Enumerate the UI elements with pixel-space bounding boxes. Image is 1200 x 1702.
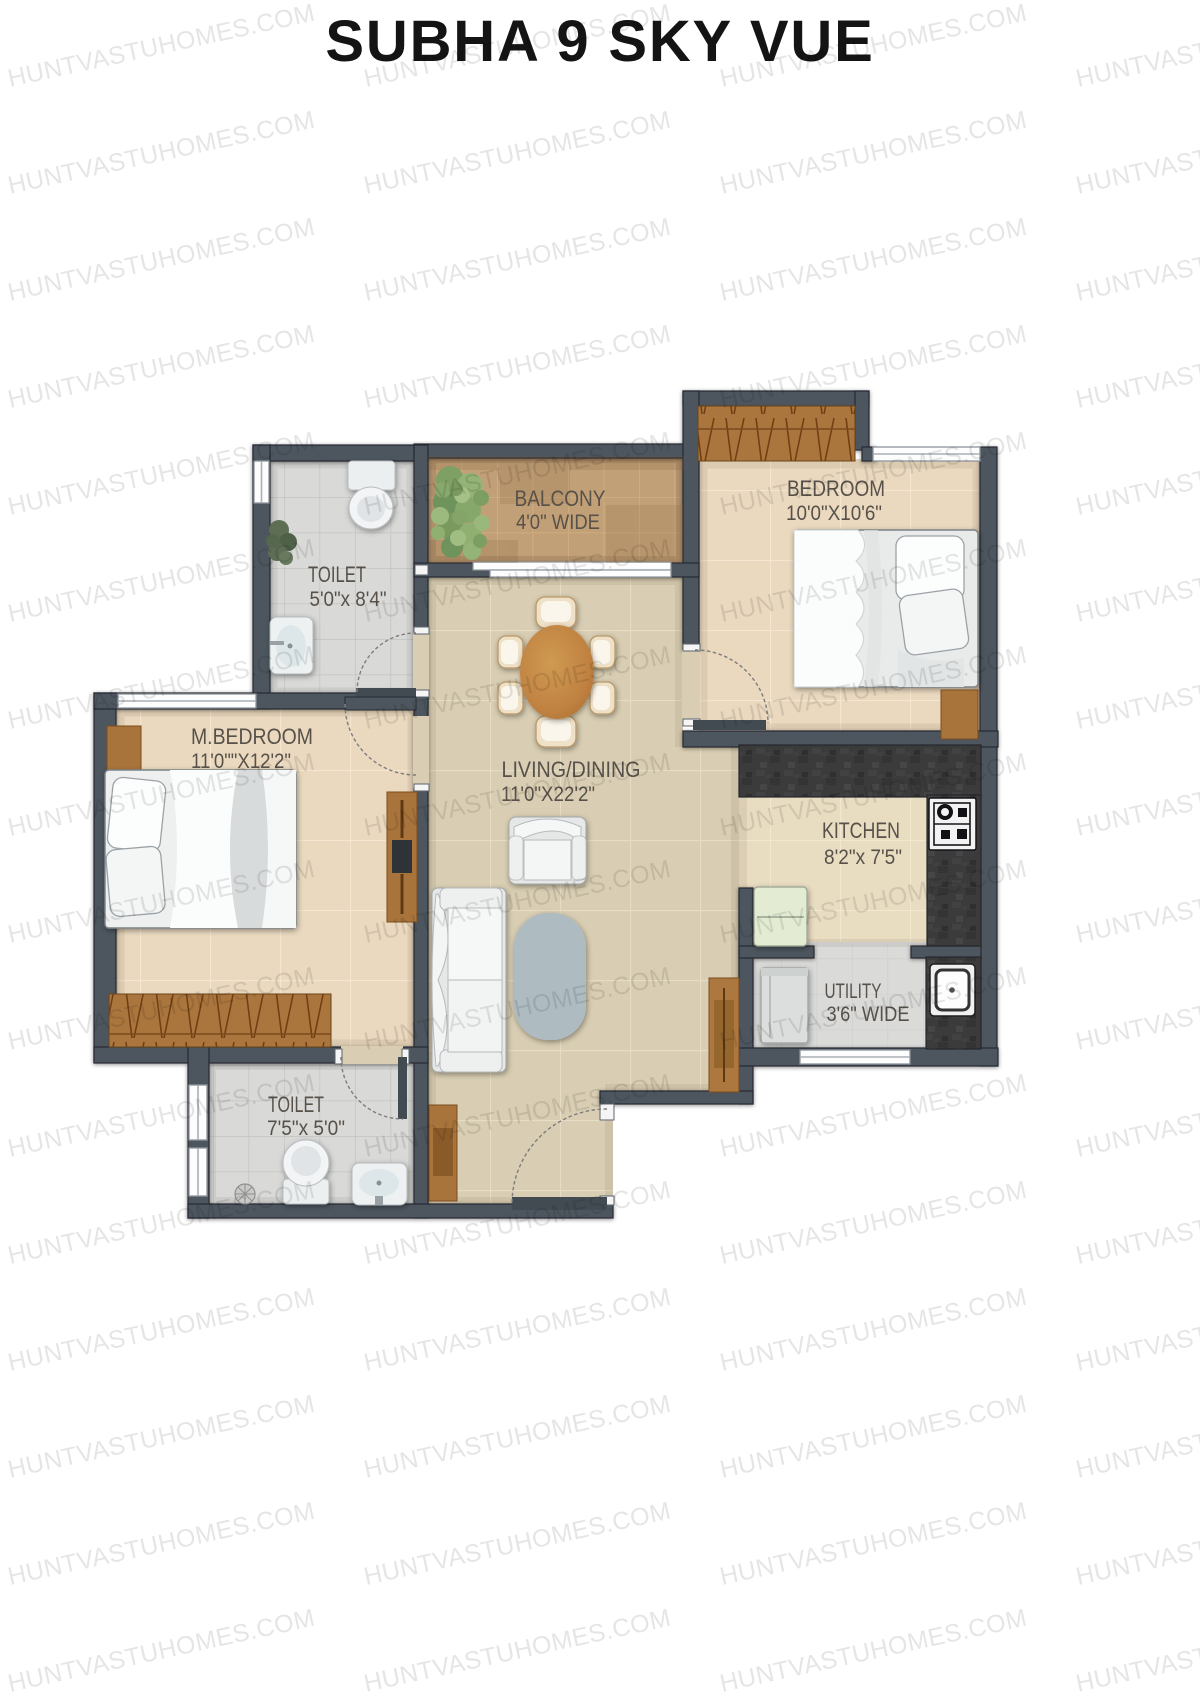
svg-text:4'0" WIDE: 4'0" WIDE <box>516 511 600 534</box>
svg-text:TOILET: TOILET <box>308 562 366 587</box>
svg-text:M.BEDROOM: M.BEDROOM <box>191 724 313 749</box>
svg-text:10'0"X10'6": 10'0"X10'6" <box>786 502 882 525</box>
svg-text:BALCONY: BALCONY <box>515 486 606 511</box>
svg-text:KITCHEN: KITCHEN <box>822 818 900 843</box>
svg-text:8'2"x 7'5": 8'2"x 7'5" <box>824 846 902 869</box>
svg-text:7'5"x 5'0": 7'5"x 5'0" <box>267 1117 345 1140</box>
